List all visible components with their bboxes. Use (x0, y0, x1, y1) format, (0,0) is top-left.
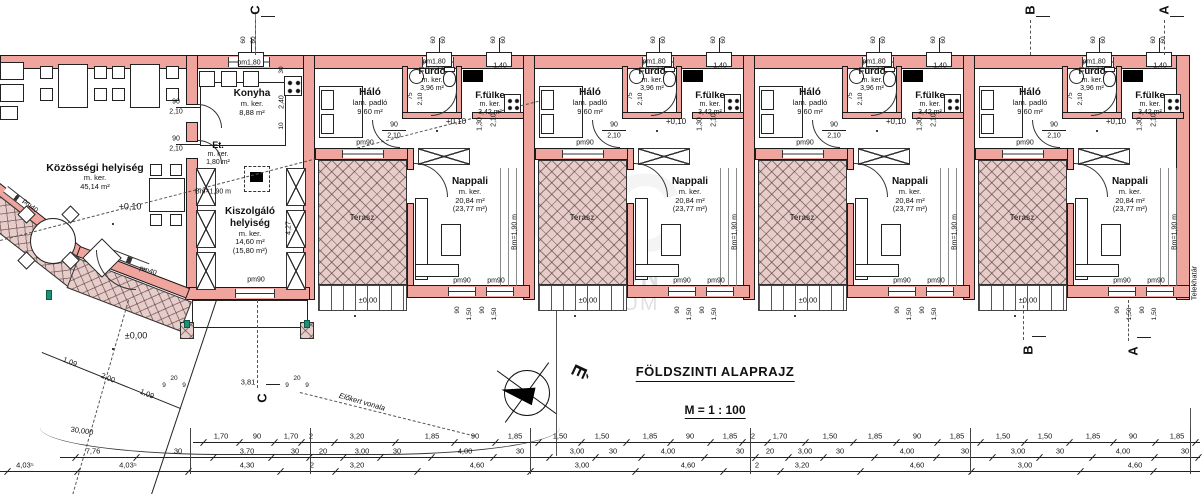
table (149, 178, 185, 212)
annotation-label: 60 (491, 36, 498, 43)
section-marker-top: C (249, 5, 262, 14)
annotation-label: 90 (1140, 306, 1147, 313)
annotation-label: pm90 (453, 278, 471, 285)
annotation-label: 1,50 (687, 308, 694, 321)
annotation-label: 90 (480, 306, 487, 313)
line (750, 428, 751, 474)
dim-label: 3,70 (240, 447, 255, 455)
line (1036, 16, 1050, 17)
annotation-label: Telekhatár (1190, 266, 1198, 301)
section-line (1164, 20, 1165, 55)
dim-label: 30 (291, 447, 299, 455)
terrace-hatch (318, 160, 407, 285)
annotation-label: pm90 (707, 278, 725, 285)
door-arc (1074, 163, 1108, 197)
stair-flight (196, 252, 216, 290)
room-label: Nappalim. ker.20,84 m²(23,77 m²) (452, 176, 488, 214)
room-label: Hálólam. padló9,60 m² (793, 87, 828, 116)
level-symbol (1096, 130, 1098, 132)
dim-label: 90 (686, 432, 694, 440)
annotation-label: 60 (881, 36, 888, 43)
room-label-line: m. ker. (419, 77, 446, 85)
dim-label: 1,85 (1086, 432, 1101, 440)
dim-label: 1,50 (553, 432, 568, 440)
green-marker (46, 290, 52, 300)
wall (523, 55, 535, 300)
section-marker-bottom: A (1127, 346, 1140, 355)
window (342, 150, 384, 158)
dim-label: 3,00 (798, 447, 813, 455)
level-symbol (112, 223, 114, 225)
window (1002, 150, 1044, 158)
door-arc (414, 163, 448, 197)
annotation-label: +0,10 (666, 118, 686, 126)
wall (963, 55, 975, 300)
line (970, 428, 971, 474)
north-letter: É (565, 361, 590, 382)
dim-label: 1,85 (508, 432, 523, 440)
annotation-label: ±0,00 (359, 296, 378, 304)
annotation-label: 60 (1151, 36, 1158, 43)
annotation-label: Bm=1,90 m (732, 214, 739, 250)
kitchen-counter (199, 71, 215, 87)
room-label-terasz: Terasz (350, 214, 375, 222)
annotation-label: 9 (182, 383, 186, 390)
drawing-title-block: FÖLDSZINTI ALAPRAJZ M = 1 : 100 (636, 364, 795, 419)
sofa (635, 264, 679, 277)
room-label: Fürdőm. ker.3,96 m² (419, 66, 446, 94)
annotation-label: 1,09 (139, 388, 155, 400)
annotation-label: 2,10 (931, 113, 938, 127)
dim-label: 30 (609, 447, 617, 455)
dim-label: 3,00 (570, 447, 585, 455)
dim-label: 4,00 (1116, 447, 1131, 455)
annotation-label: 1,30 (697, 117, 704, 131)
stove-icon (724, 94, 741, 113)
dim-label: 1,85 (1170, 432, 1185, 440)
sink-black (903, 70, 923, 82)
line (1042, 130, 1066, 131)
section-marker-bottom: B (1022, 345, 1035, 354)
line (1137, 337, 1151, 338)
annotation-label: 1,50 (1152, 308, 1159, 321)
stair-flight (286, 168, 306, 206)
annotation-label: pm90 (1113, 278, 1131, 285)
room-label-line: Fürdő (419, 66, 446, 77)
room-label-line: 45,14 m² (46, 183, 143, 192)
line (1190, 428, 1191, 474)
annotation-label: 75 (408, 92, 415, 99)
annotation-label: 1,50 (907, 308, 914, 321)
room-label: Hálólam. padló9,60 m² (573, 87, 608, 116)
annotation-label: 2,10 (1047, 133, 1061, 140)
annotation-label: pm90 (893, 278, 911, 285)
dim-label: 3,00 (1011, 447, 1026, 455)
stove-icon (1164, 94, 1181, 113)
dim-label: 30 (516, 447, 524, 455)
dim-label: 2 (751, 432, 755, 440)
level-symbol (876, 130, 878, 132)
window (448, 287, 476, 296)
dim-label: 90 (253, 432, 261, 440)
annotation-label: 1,30 (1137, 117, 1144, 131)
annotation-label: ±0,00 (1019, 296, 1038, 304)
chair (94, 66, 107, 79)
dim-label: 1,85 (950, 432, 965, 440)
annotation-label: 1,40 (933, 63, 947, 70)
wall (186, 122, 198, 142)
sink-black (683, 70, 703, 82)
annotation-label: 2,10 (491, 113, 498, 127)
room-label-line: m. ker. (915, 101, 945, 109)
chair (150, 214, 162, 226)
section-line (1128, 300, 1129, 341)
annotation-label: +0,10 (119, 203, 142, 212)
room-label: Hálólam. padló9,60 m² (353, 87, 388, 116)
annotation-label: +0,10 (1106, 118, 1126, 126)
window (1108, 287, 1136, 296)
coffee-table (441, 224, 461, 256)
dim-label: 3,20 (350, 461, 365, 469)
annotation-label: 1,50 (467, 308, 474, 321)
annotation-label: 2,10 (607, 133, 621, 140)
line (0, 471, 1200, 472)
wall (1067, 148, 1074, 170)
dim-label: 1,85 (425, 432, 440, 440)
chair (112, 66, 125, 79)
room-label-line: m. ker. (1135, 101, 1165, 109)
annotation-label: +0,10 (446, 118, 466, 126)
annotation-label: 60 (721, 36, 728, 43)
annotation-label: 60 (931, 36, 938, 43)
coffee-table (1101, 224, 1121, 256)
coffee-table (661, 224, 681, 256)
level-symbol (436, 130, 438, 132)
dim-label: 3,00 (575, 461, 590, 469)
room-label-line: (15,80 m²) (225, 247, 275, 256)
door-arc (634, 163, 668, 197)
stove-icon (284, 76, 302, 96)
annotation-label: Bm=1,90 m (952, 214, 959, 250)
cupboard (638, 148, 690, 165)
toilet-tank (444, 67, 455, 72)
dim-label: 4,03⁵ (16, 461, 34, 469)
wall (743, 55, 755, 300)
annotation-label: pm90 (673, 278, 691, 285)
room-label-line: Kiszolgáló (225, 206, 275, 218)
room-label: Fürdőm. ker.3,96 m² (639, 66, 666, 94)
annotation-label: 9 (162, 383, 166, 390)
annotation-label: 2,10 (711, 113, 718, 127)
annotation-label: 2,40 (279, 95, 286, 109)
stove-icon (504, 94, 521, 113)
room-label: Hálólam. padló9,60 m² (1013, 87, 1048, 116)
annotation-label: 60 (251, 36, 258, 43)
annotation-label: 2,10 (1151, 113, 1158, 127)
room-label-line: F.fülke (1135, 90, 1165, 101)
annotation-label: 90 (830, 122, 838, 129)
room-label-line: 9,60 m² (573, 108, 608, 117)
line (1170, 16, 1184, 17)
annotation-label: 60 (241, 36, 248, 43)
section-marker-top: B (1024, 5, 1037, 14)
chair (166, 66, 179, 79)
annotation-label: 1,40 (1153, 63, 1167, 70)
line (382, 130, 406, 131)
annotation-label: Bm=1,90 m (512, 214, 519, 250)
wall (847, 148, 854, 170)
annotation-label: Bm=1,90 m (1172, 214, 1179, 250)
annotation-label: 60 (501, 36, 508, 43)
section-marker-bottom: C (256, 393, 269, 402)
pillow (761, 90, 774, 110)
annotation-label: 2,10 (418, 93, 425, 106)
dim-label: 3,00 (1018, 461, 1033, 469)
sink-black (463, 70, 483, 82)
window (562, 150, 604, 158)
terrace-hatch (758, 160, 847, 285)
pillow (321, 90, 334, 110)
kitchen-counter (243, 71, 259, 87)
annotation-label: 60 (871, 36, 878, 43)
room-label: Nappalim. ker.20,84 m²(23,77 m²) (1112, 176, 1148, 214)
annotation-label: 20 (293, 376, 300, 383)
window (888, 287, 916, 296)
annotation-label: 2,10 (858, 93, 865, 106)
dim-label: 1,50 (595, 432, 610, 440)
toilet-tank (884, 67, 895, 72)
annotation-label: 90 (390, 122, 398, 129)
window (486, 287, 514, 296)
terrace-slab (192, 300, 308, 328)
dim-label: 1,70 (773, 432, 788, 440)
wall (627, 203, 634, 293)
green-marker (184, 320, 190, 328)
line (530, 428, 531, 474)
sofa (855, 264, 899, 277)
room-label-line: F.fülke (475, 90, 505, 101)
annotation-label: 90 (920, 306, 927, 313)
dim-label: 3,00 (355, 447, 370, 455)
room-label-line: Fürdő (639, 66, 666, 77)
dim-label: 30 (393, 447, 401, 455)
dim-label: 4,30 (240, 461, 255, 469)
annotation-label: 60 (661, 36, 668, 43)
annotation-label: 1,50 (712, 308, 719, 321)
dim-label: 30 (1056, 447, 1064, 455)
dim-label: 4,60 (681, 461, 696, 469)
annotation-label: 90 (1050, 122, 1058, 129)
dim-label: 30 (961, 447, 969, 455)
annotation-label: 20 (170, 376, 177, 383)
window (926, 287, 954, 296)
room-label-line: Fürdő (859, 66, 886, 77)
annotation-label: 2,10 (1078, 93, 1085, 106)
cupboard (1078, 148, 1130, 165)
annotation-label: 75 (848, 92, 855, 99)
annotation-label: pm1,80 (237, 60, 260, 67)
window (668, 287, 696, 296)
annotation-label: 90 (895, 306, 902, 313)
toilet-tank (1104, 67, 1115, 72)
section-line (257, 300, 258, 388)
level-symbol (656, 130, 658, 132)
furniture (0, 106, 18, 120)
dim-label: 4,60 (1128, 461, 1143, 469)
annotation-label: 1,30 (917, 117, 924, 131)
pillow (541, 114, 554, 134)
dim-label: 30 (736, 447, 744, 455)
room-label-line: m. ker. (639, 77, 666, 85)
annotation-label: 60 (441, 36, 448, 43)
section-line (1030, 20, 1031, 55)
annotation-label: pm90 (1016, 140, 1034, 147)
annotation-label: 1,40 (713, 63, 727, 70)
dim-label: 4,60 (910, 461, 925, 469)
window (1146, 287, 1174, 296)
room-label-line: F.fülke (695, 90, 725, 101)
annotation-label: pm90 (796, 140, 814, 147)
annotation-label: 2,10 (387, 133, 401, 140)
room-label: Fürdőm. ker.3,96 m² (1079, 66, 1106, 94)
line (193, 442, 1200, 443)
annotation-label: 2,10 (827, 133, 841, 140)
dim-label: 90 (471, 432, 479, 440)
furniture (0, 62, 24, 80)
dim-label: 3,20 (795, 461, 810, 469)
room-label-line: (23,77 m²) (1112, 205, 1148, 214)
annotation-label: ±0,00 (579, 296, 598, 304)
room-label-line: F.fülke (915, 90, 945, 101)
dim-label: 7,76 (86, 447, 101, 455)
furniture (0, 84, 24, 102)
dim-label: 20 (766, 447, 774, 455)
annotation-label: 60 (941, 36, 948, 43)
annotation-label: 2,00 (100, 372, 116, 384)
wall (627, 148, 634, 170)
annotation-label: pm90 (576, 140, 594, 147)
level-symbol (112, 348, 114, 350)
sink-black (1123, 70, 1143, 82)
window (706, 287, 734, 296)
room-label-line: m. ker. (475, 101, 505, 109)
pillow (761, 114, 774, 134)
drawing-scale: M = 1 : 100 (684, 403, 745, 419)
annotation-label: pm90 (356, 140, 374, 147)
dim-label: 1,85 (643, 432, 658, 440)
level-symbol (354, 315, 356, 317)
annotation-label: 3,81 (241, 378, 256, 386)
line (1032, 336, 1046, 337)
annotation-label: 2,10 (169, 109, 183, 116)
room-label-line: Et. (206, 140, 230, 151)
annotation-label: 60 (1091, 36, 1098, 43)
annotation-label: pm90 (487, 278, 505, 285)
section-marker-top: A (1158, 5, 1171, 14)
annotation-label: 1,50 (932, 308, 939, 321)
chair (170, 164, 182, 176)
annotation-label: 90 (675, 306, 682, 313)
room-label-line: helyiség (225, 218, 275, 230)
annotation-label: 30 (279, 66, 286, 73)
room-label-line: m. ker. (206, 151, 230, 159)
level-symbol (574, 315, 576, 317)
room-label: Fürdőm. ker.3,96 m² (859, 66, 886, 94)
annotation-label: 75 (628, 92, 635, 99)
dim-arc (40, 400, 560, 455)
pillow (541, 90, 554, 110)
room-label: Nappalim. ker.20,84 m²(23,77 m²) (672, 176, 708, 214)
room-label-terasz: Terasz (1010, 214, 1035, 222)
terrace-hatch (538, 160, 627, 285)
door-arc (854, 163, 888, 197)
annotation-label: 10 (279, 122, 286, 129)
annotation-label: pm1,80 (1082, 59, 1105, 66)
room-label-line: m. ker. (1079, 77, 1106, 85)
wall (847, 203, 854, 293)
green-marker (304, 320, 310, 328)
room-label-line: m. ker. (859, 77, 886, 85)
wall (407, 148, 414, 170)
dim-label: 90 (1129, 432, 1137, 440)
dim-label: 30 (836, 447, 844, 455)
dim-label: 30 (1181, 447, 1189, 455)
chair (150, 164, 162, 176)
wall (407, 203, 414, 293)
room-label: Et.m. ker.1,80 m² (206, 140, 230, 167)
pillow (981, 114, 994, 134)
annotation-label: 1,09 (62, 356, 78, 368)
annotation-label: pm1,80 (642, 59, 665, 66)
annotation-label: 90 (455, 306, 462, 313)
room-label-line: (23,77 m²) (452, 205, 488, 214)
line (60, 457, 1200, 458)
table (58, 64, 88, 108)
section-line (1023, 300, 1024, 340)
pillow (981, 90, 994, 110)
dim-label: 4,00 (900, 447, 915, 455)
dim-label: 4,00 (661, 447, 676, 455)
cupboard (418, 148, 470, 165)
room-label: Konyham. ker.8,88 m² (234, 88, 271, 117)
room-label-line: (23,77 m²) (672, 205, 708, 214)
dim-label: 1,85 (723, 432, 738, 440)
stove-icon (944, 94, 961, 113)
room-label-line: 8,88 m² (234, 109, 271, 118)
dim-label: 1,70 (214, 432, 229, 440)
room-label: Közösségi helyiségm. ker.45,14 m² (46, 162, 143, 192)
annotation-label: 60 (651, 36, 658, 43)
stair-flight (286, 252, 306, 290)
stair-flight (196, 210, 216, 248)
chair (40, 88, 53, 101)
line (261, 16, 275, 17)
annotation-label: 60 (1101, 36, 1108, 43)
line (822, 130, 846, 131)
chair (94, 88, 107, 101)
room-label-line: Fürdő (1079, 66, 1106, 77)
line (310, 428, 311, 474)
dim-label: 30 (174, 447, 182, 455)
pillow (321, 114, 334, 134)
window (782, 150, 824, 158)
annotation-label: ±0,00 (799, 296, 818, 304)
room-label-line: 9,60 m² (353, 108, 388, 117)
annotation-label: pm1,80 (862, 59, 885, 66)
room-label: Kiszolgálóhelyiségm. ker.14,60 m²(15,80 … (225, 206, 275, 256)
level-symbol (794, 315, 796, 317)
dim-label: 4,60 (470, 461, 485, 469)
